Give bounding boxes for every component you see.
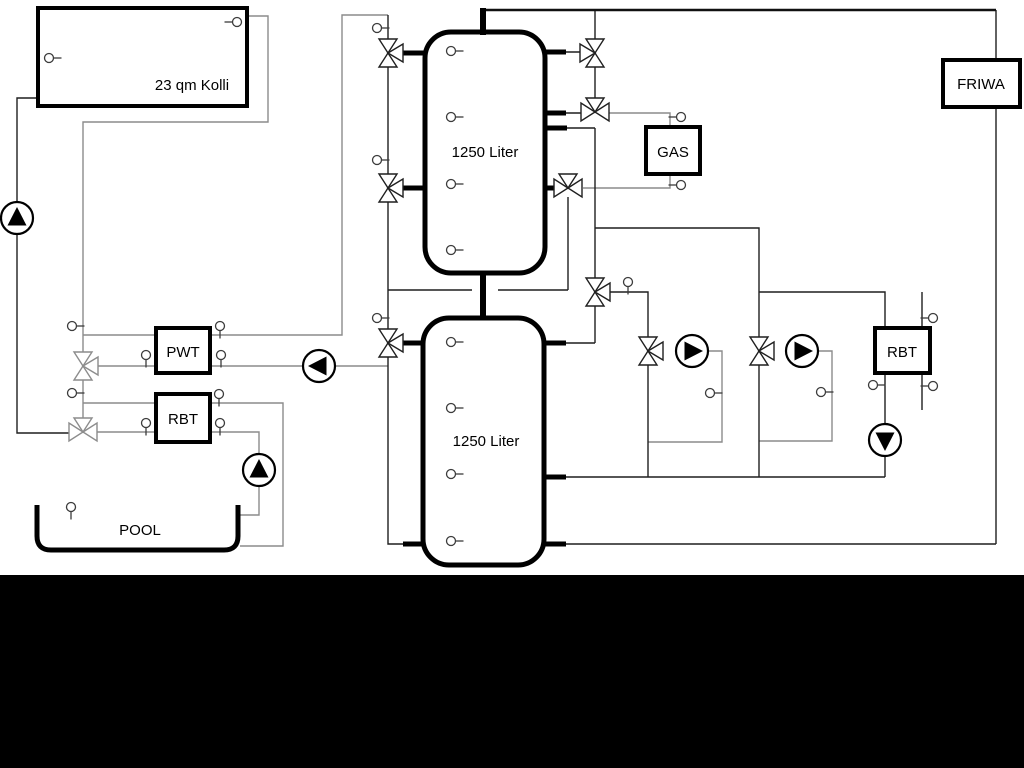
three-way-valve-icon	[379, 329, 403, 357]
pump-icon	[1, 202, 33, 234]
schematic-page: 23 qm Kolli PWT RBT GAS FRIWA RBT 1250 L…	[0, 0, 1024, 768]
pwt-heat-exchanger: PWT	[156, 328, 210, 373]
rbt-heating-heat-exchanger: RBT	[875, 328, 930, 373]
three-way-valve-icon	[554, 174, 582, 197]
temp-sensor-icon	[817, 388, 834, 397]
three-way-valve-icon	[69, 418, 97, 441]
temp-sensor-icon	[373, 314, 390, 323]
three-way-valve-icon	[379, 39, 403, 67]
three-way-valve-icon	[74, 352, 98, 380]
solar-collector: 23 qm Kolli	[38, 8, 247, 106]
temp-sensor-icon	[373, 24, 390, 33]
rbt-heating-label: RBT	[887, 344, 917, 361]
temp-sensor-icon	[921, 382, 938, 391]
pwt-label: PWT	[166, 344, 199, 361]
upper-tank-label: 1250 Liter	[452, 144, 519, 161]
pump-icon	[786, 335, 818, 367]
temp-sensor-icon	[921, 314, 938, 323]
temp-sensor-icon	[215, 390, 224, 407]
temp-sensor-icon	[669, 181, 686, 190]
temp-sensor-icon	[217, 351, 226, 368]
rbt-pool-heat-exchanger: RBT	[156, 394, 210, 442]
temp-sensor-icon	[669, 113, 686, 122]
bottom-black-band	[0, 575, 1024, 768]
temp-sensor-icon	[142, 351, 151, 368]
temp-sensor-icon	[216, 322, 225, 339]
three-way-valve-icon	[581, 98, 609, 121]
pump-icon	[243, 454, 275, 486]
three-way-valve-icon	[580, 39, 604, 67]
friwa-label: FRIWA	[957, 76, 1005, 93]
pool-label: POOL	[119, 522, 161, 539]
pump-icon	[676, 335, 708, 367]
friwa-station: FRIWA	[943, 60, 1020, 107]
temp-sensor-icon	[373, 156, 390, 165]
rbt-pool-label: RBT	[168, 411, 198, 428]
lower-tank-label: 1250 Liter	[453, 433, 520, 450]
temp-sensor-icon	[68, 389, 85, 398]
three-way-valve-icon	[379, 174, 403, 202]
three-way-valve-icon	[750, 337, 774, 365]
gas-boiler: GAS	[646, 127, 700, 174]
three-way-valve-icon	[639, 337, 663, 365]
hydraulic-schematic: 23 qm Kolli PWT RBT GAS FRIWA RBT 1250 L…	[0, 0, 1024, 768]
temp-sensor-icon	[68, 322, 85, 331]
temp-sensor-icon	[142, 419, 151, 436]
temp-sensor-icon	[67, 503, 76, 520]
pump-icon	[869, 424, 901, 456]
temp-sensor-icon	[869, 381, 886, 390]
temp-sensor-icon	[216, 419, 225, 436]
pump-icon	[303, 350, 335, 382]
temp-sensor-icon	[706, 389, 723, 398]
gas-label: GAS	[657, 144, 689, 161]
three-way-valve-icon	[586, 278, 610, 306]
collector-label: 23 qm Kolli	[155, 77, 229, 94]
